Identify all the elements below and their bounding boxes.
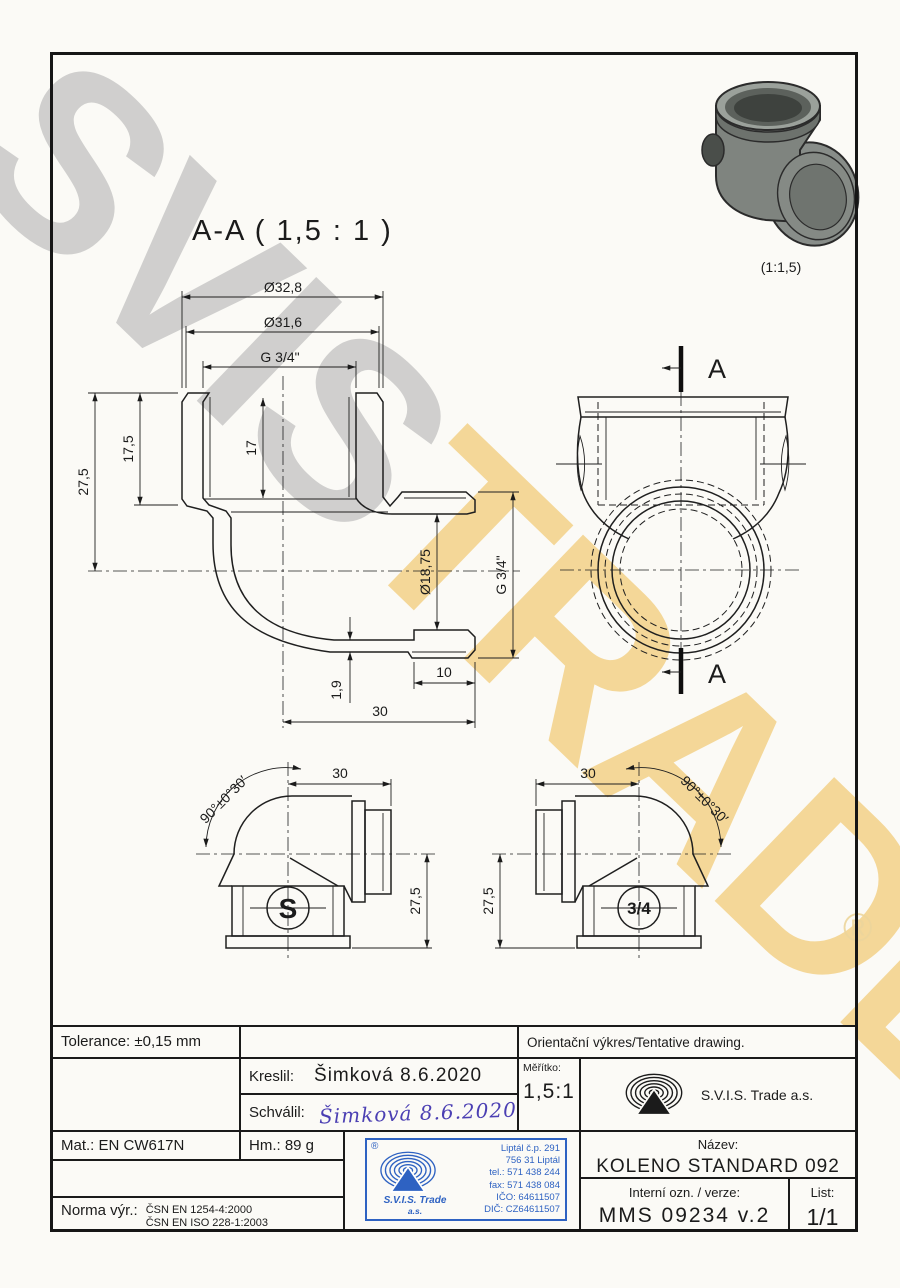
schvalil-label: Schválil: xyxy=(241,1104,305,1121)
norma-line1: ČSN EN 1254-4:2000 xyxy=(146,1204,268,1217)
stamp-logo-icon xyxy=(377,1150,439,1194)
company-logo-icon xyxy=(623,1072,685,1117)
empty-cell-2 xyxy=(53,1059,241,1132)
schvalil-signature: Šimková 8.6.2020 xyxy=(319,1097,518,1128)
stamp-address-line: fax: 571 438 084 xyxy=(484,1180,560,1192)
tolerance-cell: Tolerance: ±0,15 mm xyxy=(53,1027,241,1059)
title-block: Tolerance: ±0,15 mm Orientační výkres/Te… xyxy=(53,1025,855,1229)
material-cell: Mat.: EN CW617N xyxy=(53,1132,241,1161)
stamp-address-line: DIČ: CZ64611507 xyxy=(484,1204,560,1216)
note-cell: Orientační výkres/Tentative drawing. xyxy=(519,1027,855,1059)
list-label: List: xyxy=(790,1185,855,1200)
schvalil-cell: Schválil: Šimková 8.6.2020 xyxy=(241,1095,519,1132)
interni-cell: Interní ozn. / verze: MMS 09234 v.2 xyxy=(581,1179,790,1229)
norma-label: Norma výr.: xyxy=(53,1202,138,1219)
nazev-value: KOLENO STANDARD 092 3/4" xyxy=(581,1156,855,1179)
norma-line2: ČSN EN ISO 228-1:2003 xyxy=(146,1217,268,1229)
company-stamp: ® S.V.I.S. Trade a.s. Liptál č.p. 291 75… xyxy=(365,1138,567,1221)
stamp-address: Liptál č.p. 291 756 31 Liptál tel.: 571 … xyxy=(484,1143,560,1216)
stamp-address-line: IČO: 64611507 xyxy=(484,1192,560,1204)
empty-cell-3 xyxy=(53,1161,345,1198)
meritko-cell: Měřítko: 1,5:1 xyxy=(519,1059,581,1132)
weight-cell: Hm.: 89 g xyxy=(241,1132,345,1161)
meritko-value: 1,5:1 xyxy=(519,1080,579,1104)
interni-value: MMS 09234 v.2 xyxy=(581,1204,788,1228)
drawing-sheet: { "watermark": {"word1": "SVIS", "word2"… xyxy=(0,0,900,1288)
norma-cell: Norma výr.: ČSN EN 1254-4:2000 ČSN EN IS… xyxy=(53,1198,345,1229)
kreslil-label: Kreslil: xyxy=(241,1068,294,1085)
company-cell: S.V.I.S. Trade a.s. xyxy=(581,1059,855,1132)
meritko-label: Měřítko: xyxy=(519,1059,579,1074)
list-value: 1/1 xyxy=(790,1204,855,1229)
kreslil-value: Šimková 8.6.2020 xyxy=(314,1065,482,1087)
stamp-cell: ® S.V.I.S. Trade a.s. Liptál č.p. 291 75… xyxy=(345,1132,581,1229)
nazev-label: Název: xyxy=(581,1137,855,1152)
empty-cell-1 xyxy=(241,1027,519,1059)
stamp-address-line: tel.: 571 438 244 xyxy=(484,1167,560,1179)
interni-label: Interní ozn. / verze: xyxy=(581,1185,788,1200)
nazev-cell: Název: KOLENO STANDARD 092 3/4" xyxy=(581,1132,855,1179)
drawing-frame: Tolerance: ±0,15 mm Orientační výkres/Te… xyxy=(50,52,858,1232)
stamp-company-line1: S.V.I.S. Trade xyxy=(375,1196,455,1206)
stamp-company-line2: a.s. xyxy=(375,1206,455,1216)
kreslil-cell: Kreslil: Šimková 8.6.2020 xyxy=(241,1059,519,1095)
list-cell: List: 1/1 xyxy=(790,1179,855,1229)
stamp-address-line: 756 31 Liptál xyxy=(484,1155,560,1167)
company-name: S.V.I.S. Trade a.s. xyxy=(701,1087,813,1103)
stamp-address-line: Liptál č.p. 291 xyxy=(484,1143,560,1155)
